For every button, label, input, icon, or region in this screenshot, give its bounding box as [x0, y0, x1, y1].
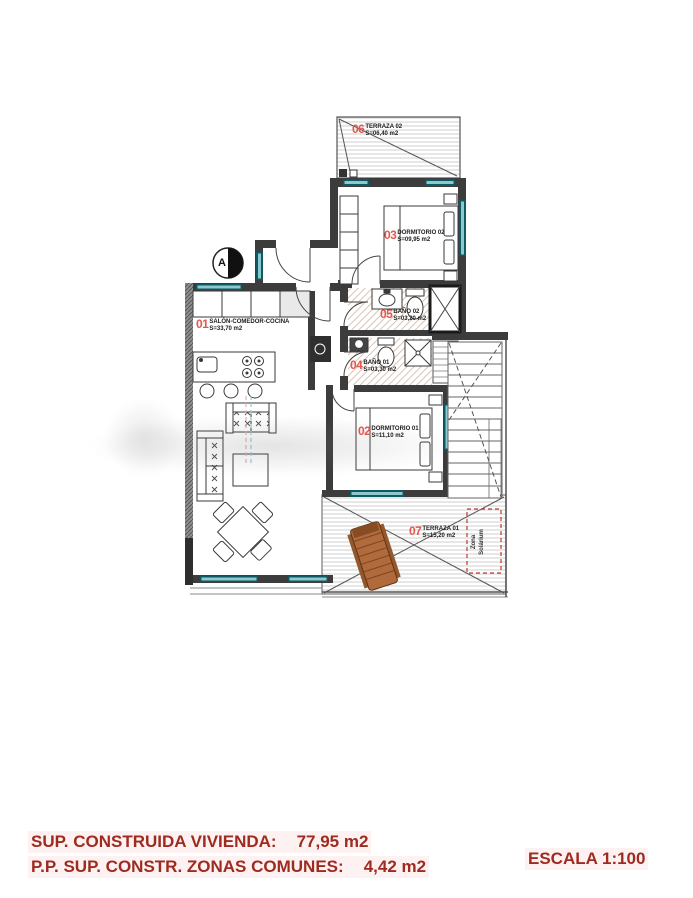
room-name: BAÑO 01 [363, 360, 396, 367]
room-number: 02 [358, 426, 370, 437]
scale-label: ESCALA 1:100 [528, 849, 645, 868]
zona-line1: Zona [471, 512, 479, 572]
stool [248, 384, 262, 398]
room-area: S=03,30 m2 [363, 367, 396, 374]
room-name: BAÑO 02 [393, 309, 426, 316]
room-number: 04 [350, 360, 362, 371]
label-terraza-02: 06 TERRAZA 02 S=06,40 m2 [352, 124, 402, 138]
room-area: S=33,70 m2 [209, 326, 289, 333]
label-bano-01: 04 BAÑO 01 S=03,30 m2 [350, 360, 396, 374]
zona-line2: Solárium [479, 512, 487, 572]
room-area: S=06,40 m2 [365, 131, 402, 138]
footer-scale: ESCALA 1:100 [525, 848, 648, 870]
room-number: 06 [352, 124, 364, 135]
room-name: DORMITORIO 01 [371, 426, 418, 433]
common-zones-value: 4,42 m2 [364, 857, 426, 876]
solarium-zone-label: Zona Solárium [471, 512, 499, 572]
room-area: S=09,95 m2 [397, 237, 444, 244]
room-number: 03 [384, 230, 396, 241]
room-area: S=03,20 m2 [393, 316, 426, 323]
watermark-smudge [104, 398, 184, 478]
elevator-shaft [430, 286, 460, 332]
label-dormitorio-01: 02 DORMITORIO 01 S=11,10 m2 [358, 426, 419, 440]
built-area-value: 77,95 m2 [297, 832, 369, 851]
room-name: TERRAZA 02 [365, 124, 402, 131]
label-dormitorio-02: 03 DORMITORIO 02 S=09,95 m2 [384, 230, 445, 244]
room-number: 05 [380, 309, 392, 320]
kitchen [193, 291, 310, 398]
label-bano-02: 05 BAÑO 02 S=03,20 m2 [380, 309, 426, 323]
label-terraza-01: 07 TERRAZA 01 S=15,20 m2 [409, 526, 459, 540]
toilet-2-tank [406, 289, 424, 296]
room-name: TERRAZA 01 [422, 526, 459, 533]
nightstand [444, 194, 457, 204]
nightstand [429, 395, 442, 405]
footer-built-area: SUP. CONSTRUIDA VIVIENDA:77,95 m2 [28, 831, 371, 853]
footer-common-zones: P.P. SUP. CONSTR. ZONAS COMUNES:4,42 m2 [28, 856, 429, 878]
nightstand [444, 271, 457, 281]
exterior-wall-dark [185, 538, 193, 585]
stool [200, 384, 214, 398]
room-number: 01 [196, 319, 208, 330]
stool [224, 384, 238, 398]
room-area: S=15,20 m2 [422, 533, 459, 540]
section-marker-letter: A [218, 257, 226, 269]
room-area: S=11,10 m2 [371, 433, 418, 440]
common-zones-label: P.P. SUP. CONSTR. ZONAS COMUNES: [31, 857, 344, 876]
room-name: DORMITORIO 02 [397, 230, 444, 237]
storage-unit [310, 336, 331, 362]
toilet-1-tank [378, 338, 394, 345]
label-salon: 01 SALÓN-COMEDOR-COCINA S=33,70 m2 [196, 319, 289, 333]
room-name: SALÓN-COMEDOR-COCINA [209, 319, 289, 326]
room-number: 07 [409, 526, 421, 537]
built-area-label: SUP. CONSTRUIDA VIVIENDA: [31, 832, 277, 851]
